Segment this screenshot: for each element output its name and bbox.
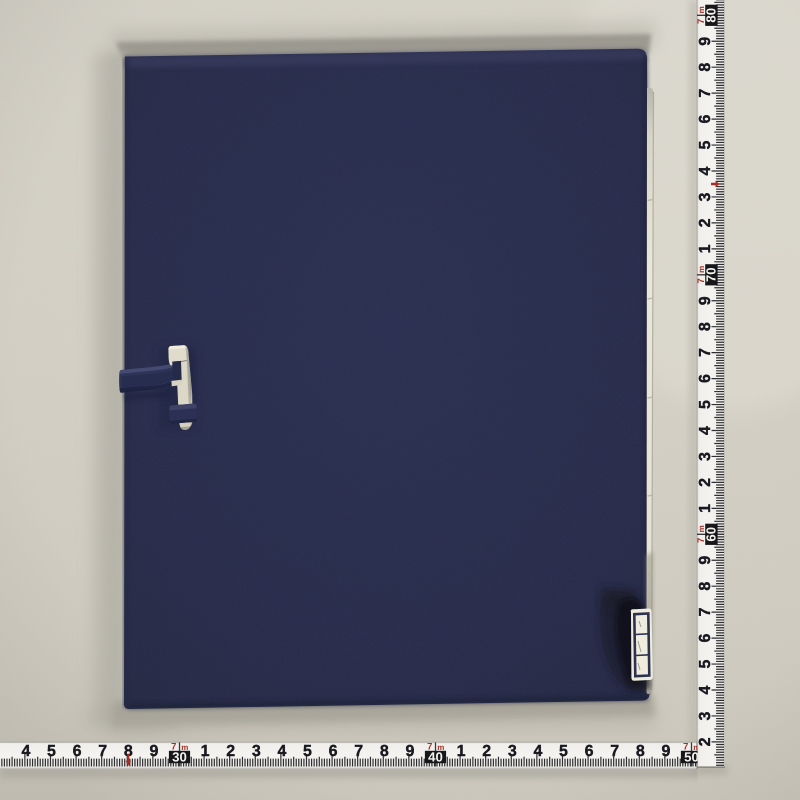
- svg-text:5: 5: [697, 141, 714, 150]
- svg-text:4: 4: [533, 743, 542, 760]
- svg-text:3: 3: [697, 452, 714, 461]
- svg-text:9: 9: [697, 296, 714, 305]
- svg-text:6: 6: [585, 743, 594, 760]
- svg-text:9: 9: [149, 743, 158, 760]
- svg-text:7: 7: [683, 742, 688, 753]
- svg-text:7: 7: [427, 742, 432, 753]
- svg-text:m: m: [697, 266, 706, 273]
- svg-text:8: 8: [636, 743, 645, 760]
- svg-text:3: 3: [252, 743, 261, 760]
- svg-text:3: 3: [697, 711, 714, 720]
- svg-text:7: 7: [696, 19, 707, 24]
- svg-text:7: 7: [696, 278, 707, 283]
- svg-text:m: m: [697, 6, 706, 13]
- svg-text:6: 6: [697, 374, 714, 383]
- svg-text:7: 7: [98, 743, 107, 760]
- svg-text:9: 9: [697, 37, 714, 46]
- svg-text:1: 1: [697, 244, 714, 253]
- svg-text:4: 4: [277, 743, 286, 760]
- svg-text:5: 5: [697, 659, 714, 668]
- svg-text:5: 5: [303, 743, 312, 760]
- svg-text:1: 1: [201, 743, 210, 760]
- svg-text:4: 4: [697, 426, 714, 435]
- svg-text:6: 6: [73, 743, 82, 760]
- svg-text:5: 5: [697, 400, 714, 409]
- svg-text:5: 5: [559, 743, 568, 760]
- svg-text:7: 7: [697, 608, 714, 617]
- svg-text:7: 7: [610, 743, 619, 760]
- svg-text:4: 4: [697, 166, 714, 175]
- svg-text:1: 1: [697, 504, 714, 513]
- svg-text:9: 9: [405, 743, 414, 760]
- svg-text:9: 9: [661, 743, 670, 760]
- svg-text:4: 4: [21, 743, 30, 760]
- svg-text:7: 7: [697, 348, 714, 357]
- svg-text:2: 2: [482, 743, 491, 760]
- svg-text:7: 7: [354, 743, 363, 760]
- svg-text:8: 8: [697, 63, 714, 72]
- svg-text:2: 2: [697, 218, 714, 227]
- svg-text:8: 8: [697, 322, 714, 331]
- svg-text:7: 7: [696, 538, 707, 543]
- svg-text:2: 2: [226, 743, 235, 760]
- svg-text:8: 8: [697, 582, 714, 591]
- svg-text:2: 2: [697, 478, 714, 487]
- svg-text:4: 4: [697, 685, 714, 694]
- svg-text:7: 7: [697, 89, 714, 98]
- svg-text:2: 2: [697, 737, 714, 746]
- svg-text:6: 6: [697, 115, 714, 124]
- svg-text:m: m: [697, 525, 706, 532]
- svg-text:5: 5: [47, 743, 56, 760]
- svg-text:8: 8: [380, 743, 389, 760]
- svg-text:m: m: [437, 743, 444, 752]
- svg-text:1: 1: [457, 743, 466, 760]
- svg-text:6: 6: [329, 743, 338, 760]
- svg-text:7: 7: [171, 742, 176, 753]
- svg-text:3: 3: [508, 743, 517, 760]
- svg-text:6: 6: [697, 634, 714, 643]
- svg-text:m: m: [181, 743, 188, 752]
- svg-text:9: 9: [697, 556, 714, 565]
- svg-text:3: 3: [697, 192, 714, 201]
